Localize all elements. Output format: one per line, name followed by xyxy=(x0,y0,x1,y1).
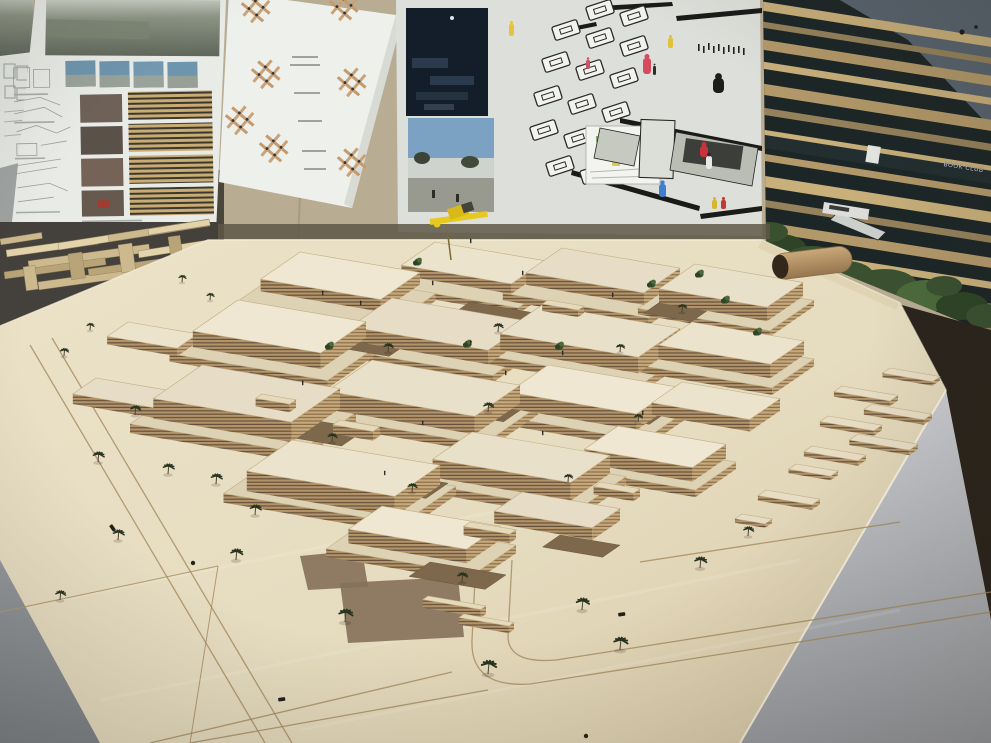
crowd-figure xyxy=(728,45,730,52)
crowd-figure xyxy=(708,43,710,50)
crowd-figure xyxy=(703,46,705,53)
tiny-figure xyxy=(612,293,614,298)
tiny-figure xyxy=(360,301,362,306)
tiny-figure xyxy=(470,239,472,244)
crowd-figure xyxy=(713,46,715,53)
crowd-figure xyxy=(698,44,700,51)
tiny-figure xyxy=(302,381,304,386)
tiny-figure xyxy=(432,281,434,286)
crowd-figure xyxy=(738,46,740,53)
pin xyxy=(191,561,195,565)
bird-speck xyxy=(959,29,964,34)
poster-left xyxy=(12,0,226,234)
tiny-figure xyxy=(384,471,386,476)
facade-sign xyxy=(865,145,880,164)
tiny-figure xyxy=(562,351,564,356)
tiny-figure xyxy=(470,341,472,346)
tiny-figure xyxy=(505,371,507,376)
tiny-figure xyxy=(642,411,644,416)
crowd-figure xyxy=(718,44,720,51)
tiny-figure xyxy=(422,421,424,426)
tiny-figure xyxy=(322,291,324,296)
crowd-figure xyxy=(723,47,725,54)
tiny-figure xyxy=(522,271,524,276)
bird-speck xyxy=(974,25,978,29)
pin xyxy=(584,734,588,738)
poster-center xyxy=(396,0,762,236)
scene-canvas xyxy=(0,0,991,743)
crowd-figure xyxy=(743,48,745,55)
tiny-figure xyxy=(542,431,544,436)
photo-architectural-model-scene: BOOK CLUB xyxy=(0,0,991,743)
crowd-figure xyxy=(733,47,735,54)
tree-canopy xyxy=(926,276,962,296)
